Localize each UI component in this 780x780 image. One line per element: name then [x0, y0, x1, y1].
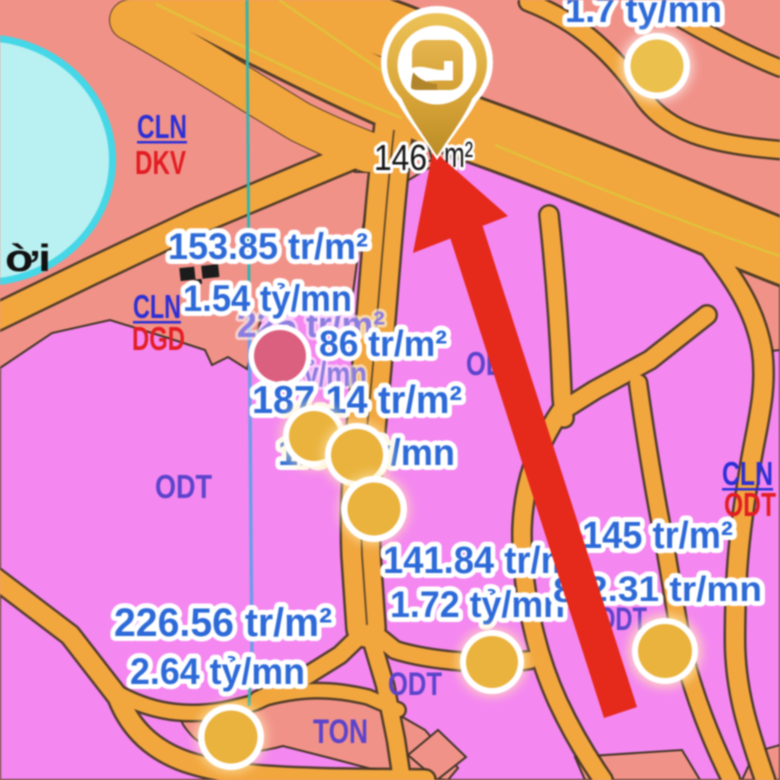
svg-text:145 tr/m²: 145 tr/m²: [582, 515, 733, 557]
svg-text:TON: TON: [313, 713, 368, 751]
svg-text:ời: ời: [5, 238, 51, 280]
svg-text:1.7 tỷ/mn: 1.7 tỷ/mn: [565, 0, 722, 30]
svg-text:2.64 tỷ/mn: 2.64 tỷ/mn: [130, 651, 305, 692]
svg-text:146: 146: [374, 137, 427, 178]
svg-text:187.14 tr/m²: 187.14 tr/m²: [252, 379, 462, 422]
svg-text:86 tr/m²: 86 tr/m²: [319, 323, 447, 364]
svg-text:1.72 tỷ/mn: 1.72 tỷ/mn: [390, 584, 565, 625]
svg-text:ODT: ODT: [388, 666, 442, 702]
svg-text:153.85 tr/m²: 153.85 tr/m²: [168, 226, 368, 267]
svg-text:DGD: DGD: [132, 320, 185, 357]
svg-text:226.56 tr/m²: 226.56 tr/m²: [114, 601, 332, 645]
svg-text:DKV: DKV: [135, 144, 186, 181]
svg-text:1.54 tỷ/mn: 1.54 tỷ/mn: [183, 278, 352, 319]
svg-text:CLN: CLN: [137, 108, 187, 145]
svg-text:ODT: ODT: [155, 468, 212, 505]
svg-text:ODT: ODT: [724, 486, 776, 523]
